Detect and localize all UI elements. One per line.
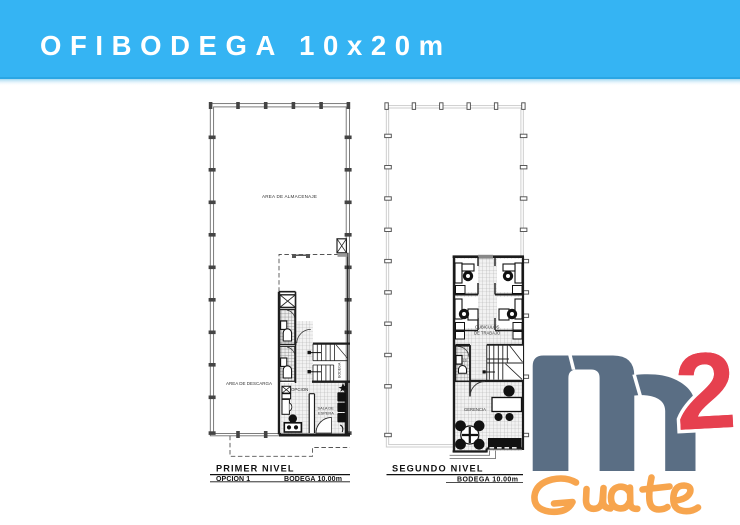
svg-text:LS: LS <box>463 359 467 363</box>
svg-text:GERENCIA: GERENCIA <box>464 407 486 412</box>
svg-text:SEGUNDO NIVEL: SEGUNDO NIVEL <box>392 464 484 474</box>
svg-text:CUBICULOS: CUBICULOS <box>475 325 500 330</box>
svg-text:OFIBODEGA 10x20m: OFIBODEGA 10x20m <box>40 30 452 61</box>
svg-text:AREA DE ALMACENAJE: AREA DE ALMACENAJE <box>262 194 317 199</box>
svg-text:OPCION: OPCION <box>291 387 308 392</box>
svg-text:2: 2 <box>672 329 739 454</box>
svg-text:ESPERA: ESPERA <box>318 411 334 416</box>
svg-text:DE TRABAJO: DE TRABAJO <box>474 331 501 336</box>
svg-text:AREA DE DESCARGA: AREA DE DESCARGA <box>226 381 272 386</box>
svg-text:BODEGA: BODEGA <box>338 362 342 378</box>
svg-text:PRIMER NIVEL: PRIMER NIVEL <box>216 464 295 474</box>
